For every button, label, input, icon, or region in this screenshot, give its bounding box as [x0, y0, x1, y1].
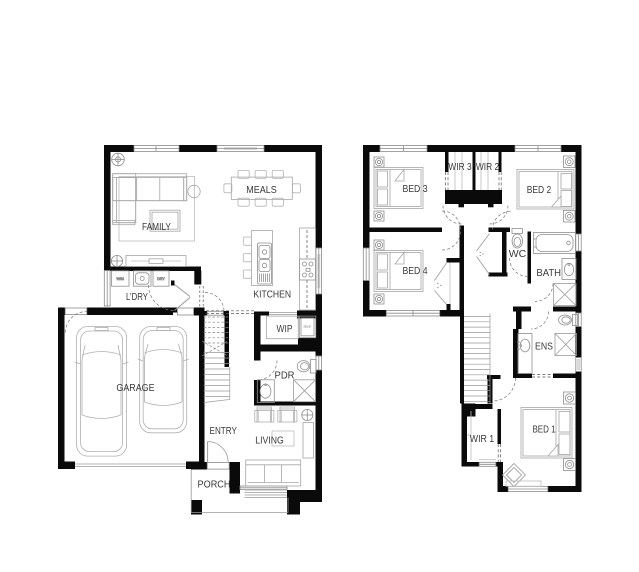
svg-text:BATH: BATH	[536, 267, 561, 279]
svg-text:PDR: PDR	[275, 370, 295, 382]
svg-text:BED 1: BED 1	[532, 424, 555, 436]
svg-text:PORCH: PORCH	[198, 479, 231, 491]
svg-text:LIVING: LIVING	[255, 435, 284, 447]
svg-text:DRY: DRY	[157, 277, 165, 281]
svg-text:WIP: WIP	[277, 323, 293, 335]
svg-text:WIR 1: WIR 1	[470, 433, 495, 445]
svg-text:WIR 3: WIR 3	[448, 161, 471, 173]
svg-text:KITCHEN: KITCHEN	[253, 289, 291, 301]
svg-text:ENTRY: ENTRY	[210, 425, 237, 437]
svg-text:FAMILY: FAMILY	[142, 221, 171, 233]
svg-text:BED 4: BED 4	[402, 265, 427, 277]
svg-text:BED 2: BED 2	[527, 184, 552, 196]
svg-text:BED 3: BED 3	[402, 183, 427, 195]
svg-text:WC: WC	[509, 248, 527, 260]
svg-text:REF: REF	[304, 324, 313, 329]
svg-text:MEALS: MEALS	[246, 184, 277, 196]
svg-text:WIR 2: WIR 2	[476, 161, 499, 173]
svg-text:L’DRY: L’DRY	[126, 291, 148, 303]
svg-text:W/M: W/M	[117, 277, 124, 281]
svg-text:ENS: ENS	[535, 341, 553, 353]
svg-text:GARAGE: GARAGE	[116, 382, 154, 394]
